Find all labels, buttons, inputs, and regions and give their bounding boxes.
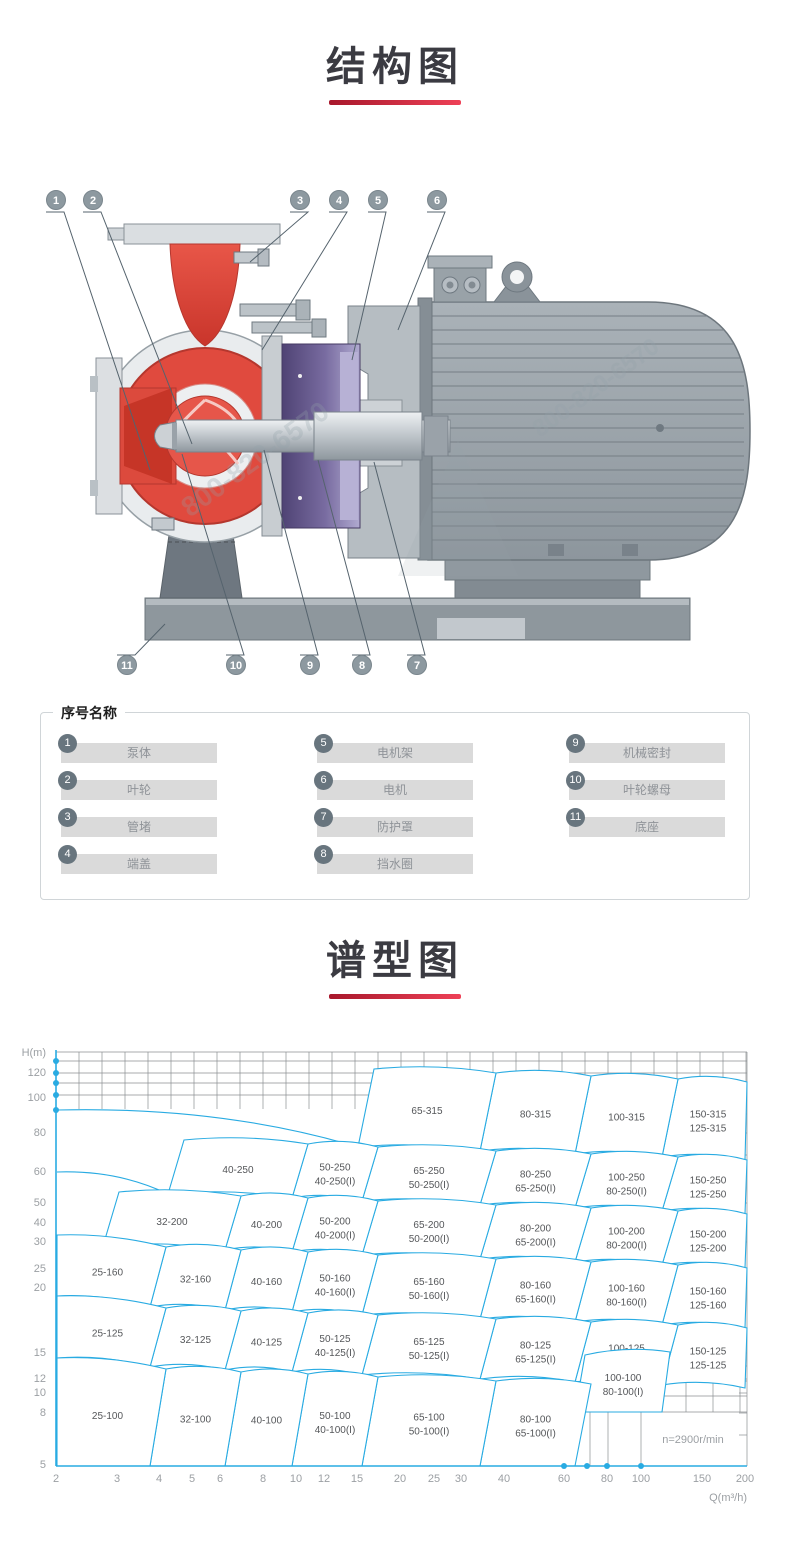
region-label: 80-100(I): [603, 1387, 644, 1398]
region-label: 50-125: [319, 1334, 351, 1345]
legend-item-name: 电机: [317, 780, 473, 800]
callout-number: 8: [359, 660, 365, 672]
legend-column: 5电机架6电机7防护罩8挡水圈: [317, 743, 473, 891]
legend-item: 1泵体: [61, 743, 217, 763]
region-label: 25-160: [92, 1267, 124, 1278]
y-tick-label: 8: [40, 1407, 46, 1419]
region-label: 100-100: [605, 1373, 642, 1384]
pipe-plug: [234, 252, 260, 263]
legend-item-number: 2: [58, 771, 77, 790]
x-tick-label: 30: [455, 1473, 467, 1485]
legend-column: 1泵体2叶轮3管堵4端盖: [61, 743, 217, 891]
y-tick-label: 40: [34, 1217, 46, 1229]
legend-item-name: 泵体: [61, 743, 217, 763]
region-label: 65-125(I): [515, 1355, 556, 1366]
y-tick-label: 10: [34, 1387, 46, 1399]
region-label: 100-200: [608, 1227, 645, 1238]
callout-number: 7: [414, 660, 420, 672]
callout-number: 5: [375, 195, 381, 207]
axis-dot: [638, 1463, 644, 1469]
y-tick-label: 60: [34, 1166, 46, 1178]
legend-item: 3管堵: [61, 817, 217, 837]
callout-number: 2: [90, 195, 96, 207]
region-label: 50-125(I): [409, 1351, 450, 1362]
region-label: 150-200: [690, 1230, 727, 1241]
callout-number: 9: [307, 660, 313, 672]
region-label: 65-100: [413, 1413, 445, 1424]
x-tick-label: 150: [693, 1473, 711, 1485]
region-label: 25-125: [92, 1328, 124, 1339]
title-underline: [329, 994, 461, 999]
region-label: 32-125: [180, 1335, 212, 1346]
region-label: 65-315: [411, 1106, 443, 1117]
region-label: 65-250: [413, 1166, 445, 1177]
region-label: 65-200(I): [515, 1238, 556, 1249]
rpm-annotation: n=2900r/min: [662, 1434, 723, 1446]
x-tick-label: 6: [217, 1473, 223, 1485]
x-tick-label: 10: [290, 1473, 302, 1485]
region-label: 40-100: [251, 1416, 283, 1427]
x-tick-label: 15: [351, 1473, 363, 1485]
spectrum-title: 谱型图: [0, 928, 790, 986]
terminal-box-lid: [428, 256, 492, 268]
spectrum-section-header: 谱型图: [0, 928, 790, 999]
legend-item: 9机械密封: [569, 743, 725, 763]
region-label: 50-100(I): [409, 1427, 450, 1438]
y-tick-label: 50: [34, 1197, 46, 1209]
callout-number: 6: [434, 195, 440, 207]
structure-section-header: 结构图: [0, 34, 790, 105]
region-label: 40-200(I): [315, 1231, 356, 1242]
region-label: 65-250(I): [515, 1184, 556, 1195]
region-label: 40-250(I): [315, 1177, 356, 1188]
region-label: 65-200: [413, 1220, 445, 1231]
callout-number: 3: [297, 195, 303, 207]
y-tick-label: 12: [34, 1373, 46, 1385]
region-label: 65-100(I): [515, 1428, 556, 1439]
legend-item: 10叶轮螺母: [569, 780, 725, 800]
region-label: 50-250: [319, 1163, 351, 1174]
region-label: 65-160(I): [515, 1295, 556, 1306]
legend-item-name: 叶轮: [61, 780, 217, 800]
region-label: 80-160(I): [606, 1298, 647, 1309]
legend-item-number: 5: [314, 734, 333, 753]
region-label: 80-250(I): [606, 1187, 647, 1198]
pump-structure-figure: 800-820-6570 800-820-6570 1234561110987: [0, 178, 790, 698]
callout-number: 11: [121, 660, 133, 672]
region-label: 150-250: [690, 1176, 727, 1187]
legend-item-number: 9: [566, 734, 585, 753]
suction-flange: [96, 358, 122, 514]
y-tick-label: 100: [28, 1092, 46, 1104]
region-label: 40-160(I): [315, 1288, 356, 1299]
region-label: 125-315: [690, 1124, 727, 1135]
legend-item-number: 7: [314, 808, 333, 827]
discharge-passage: [170, 244, 240, 346]
x-tick-label: 8: [260, 1473, 266, 1485]
x-tick-label: 2: [53, 1473, 59, 1485]
legend-item: 7防护罩: [317, 817, 473, 837]
legend-item-name: 端盖: [61, 854, 217, 874]
axis-dot: [604, 1463, 610, 1469]
region-label: 50-160: [319, 1274, 351, 1285]
parts-legend: 序号名称 1泵体2叶轮3管堵4端盖 5电机架6电机7防护罩8挡水圈 9机械密封1…: [40, 712, 750, 900]
title-underline: [329, 100, 461, 105]
region-label: 125-250: [690, 1190, 727, 1201]
region-label: 65-160: [413, 1277, 445, 1288]
legend-item-number: 8: [314, 845, 333, 864]
legend-item-number: 3: [58, 808, 77, 827]
axis-dot: [53, 1080, 59, 1086]
axis-dot: [561, 1463, 567, 1469]
x-tick-label: 25: [428, 1473, 440, 1485]
structure-title: 结构图: [0, 34, 790, 92]
motor-drain-plug: [656, 424, 664, 432]
legend-column: 9机械密封10叶轮螺母11底座: [569, 743, 725, 854]
legend-item-name: 管堵: [61, 817, 217, 837]
region-label: 150-160: [690, 1287, 727, 1298]
axis-dot: [584, 1463, 590, 1469]
y-tick-label: 30: [34, 1236, 46, 1248]
pump-selection-chart: 150-315125-315100-31580-31565-315150-250…: [0, 1030, 790, 1545]
region-label: 50-250(I): [409, 1180, 450, 1191]
legend-item: 5电机架: [317, 743, 473, 763]
region-label: 125-200: [690, 1244, 727, 1255]
region-label: 80-160: [520, 1281, 552, 1292]
axis-dot: [53, 1058, 59, 1064]
callout-number: 4: [336, 195, 343, 207]
discharge-flange: [124, 224, 280, 244]
region-label: 50-160(I): [409, 1291, 450, 1302]
region-label: 80-100: [520, 1414, 552, 1425]
x-tick-label: 12: [318, 1473, 330, 1485]
legend-item-name: 防护罩: [317, 817, 473, 837]
callout-number: 10: [230, 660, 242, 672]
legend-item-name: 机械密封: [569, 743, 725, 763]
region-label: 32-100: [180, 1414, 212, 1425]
region-label: 80-315: [520, 1110, 552, 1121]
legend-item: 8挡水圈: [317, 854, 473, 874]
region-label: 32-200: [156, 1217, 188, 1228]
region-label: 50-200: [319, 1217, 351, 1228]
region-label: 150-315: [690, 1110, 727, 1121]
casing-stud-bolt: [240, 304, 300, 316]
x-tick-label: 4: [156, 1473, 162, 1485]
region-label: 40-160: [251, 1277, 283, 1288]
y-tick-label: 80: [34, 1127, 46, 1139]
legend-item-name: 底座: [569, 817, 725, 837]
legend-item-name: 挡水圈: [317, 854, 473, 874]
region-label: 40-125: [251, 1338, 283, 1349]
x-tick-label: 200: [736, 1473, 754, 1485]
region-label: 25-100: [92, 1411, 124, 1422]
axis-dot: [53, 1092, 59, 1098]
region-label: 125-125: [690, 1361, 727, 1372]
legend-item-number: 1: [58, 734, 77, 753]
axis-dot: [53, 1070, 59, 1076]
product-page: 结构图: [0, 0, 790, 1545]
y-tick-label: 20: [34, 1282, 46, 1294]
region-label: 125-160: [690, 1301, 727, 1312]
y-tick-label: 5: [40, 1459, 46, 1471]
y-tick-label: 120: [28, 1067, 46, 1079]
x-tick-label: 20: [394, 1473, 406, 1485]
legend-item: 2叶轮: [61, 780, 217, 800]
legend-item-number: 10: [566, 771, 585, 790]
region-label: 40-125(I): [315, 1348, 356, 1359]
region-label: 80-250: [520, 1170, 552, 1181]
y-tick-label: 15: [34, 1347, 46, 1359]
x-tick-label: 60: [558, 1473, 570, 1485]
legend-item-name: 叶轮螺母: [569, 780, 725, 800]
x-tick-label: 80: [601, 1473, 613, 1485]
region-label: 100-250: [608, 1173, 645, 1184]
region-label: 50-200(I): [409, 1234, 450, 1245]
legend-title: 序号名称: [53, 703, 125, 723]
region-label: 40-250: [222, 1165, 254, 1176]
motor-plinth: [455, 580, 640, 598]
legend-item: 6电机: [317, 780, 473, 800]
legend-item: 11底座: [569, 817, 725, 837]
region-label: 100-315: [608, 1113, 645, 1124]
region-label: 65-125: [413, 1337, 445, 1348]
casing-stud-bolt: [252, 322, 316, 333]
legend-item-number: 4: [58, 845, 77, 864]
axis-dot: [53, 1107, 59, 1113]
legend-item-number: 6: [314, 771, 333, 790]
region-label: 80-200(I): [606, 1241, 647, 1252]
x-tick-label: 100: [632, 1473, 650, 1485]
x-tick-label: 40: [498, 1473, 510, 1485]
region-label: 100-160: [608, 1284, 645, 1295]
region-label: 80-125: [520, 1341, 552, 1352]
region-label: 80-200: [520, 1224, 552, 1235]
y-axis-title: H(m): [22, 1047, 46, 1059]
x-axis-title: Q(m³/h): [709, 1492, 747, 1504]
x-tick-label: 3: [114, 1473, 120, 1485]
legend-item-number: 11: [566, 808, 585, 827]
region-label: 50-100: [319, 1411, 351, 1422]
x-tick-label: 5: [189, 1473, 195, 1485]
callout-number: 1: [53, 195, 59, 207]
y-tick-label: 25: [34, 1263, 46, 1275]
legend-item-name: 电机架: [317, 743, 473, 763]
region-label: 40-200: [251, 1220, 283, 1231]
region-label: 32-160: [180, 1275, 212, 1286]
region-label: 40-100(I): [315, 1425, 356, 1436]
legend-item: 4端盖: [61, 854, 217, 874]
region-label: 150-125: [690, 1347, 727, 1358]
